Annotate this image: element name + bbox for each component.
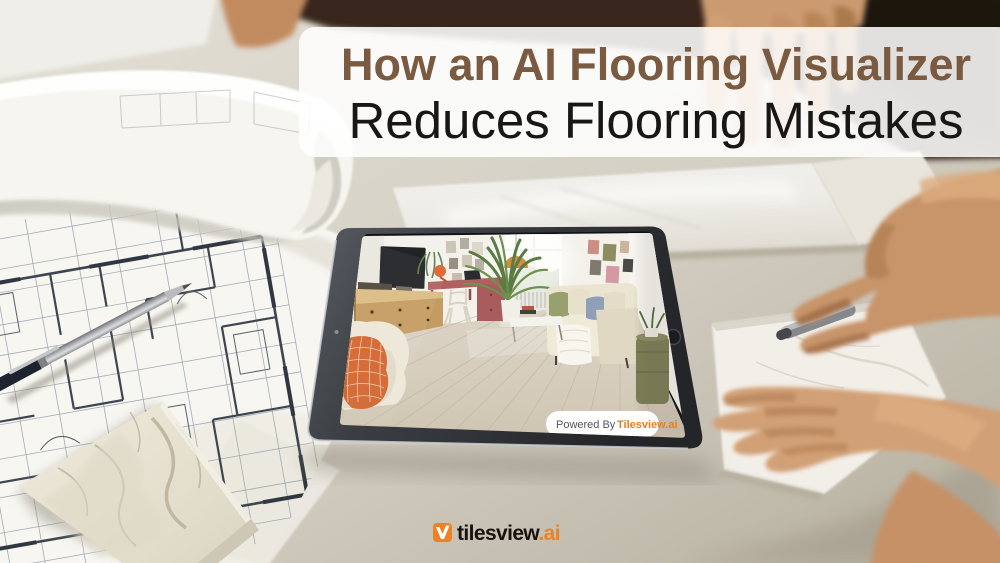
svg-text:Tilesview.ai: Tilesview.ai [617, 419, 678, 431]
svg-text:Powered By: Powered By [556, 419, 616, 431]
